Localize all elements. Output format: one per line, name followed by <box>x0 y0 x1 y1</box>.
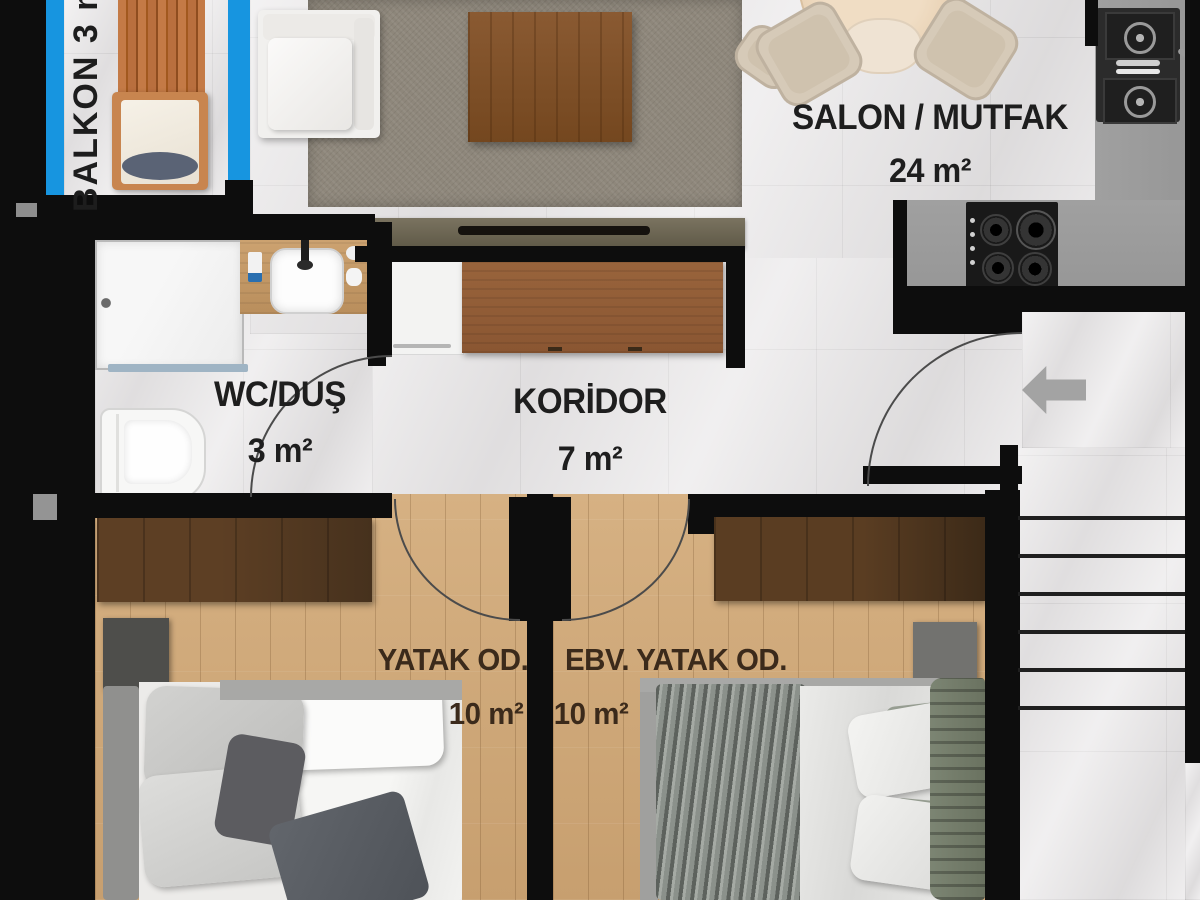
wall-end-cap <box>33 494 57 520</box>
stairwell-floor-edge <box>1185 763 1200 900</box>
wall <box>368 246 386 366</box>
soap-dispenser <box>248 252 262 282</box>
bedroom-left-top-wall <box>92 494 392 518</box>
wall <box>726 246 745 368</box>
bedroom-left-label: YATAK OD. <box>358 642 548 678</box>
wall <box>225 180 253 222</box>
tv-wall <box>355 246 745 262</box>
sink-faucet <box>1116 69 1160 74</box>
sink-basin <box>1103 78 1177 124</box>
bedroom-right-top-wall <box>688 494 1020 517</box>
stove-burner-icon <box>982 252 1014 284</box>
shower-tray <box>95 240 244 370</box>
stove-burner-icon <box>980 214 1012 246</box>
wardrobe-handle <box>628 347 642 351</box>
balcony-label: BALKON 3 m² <box>58 0 114 212</box>
sink-drain-icon <box>1124 86 1156 118</box>
wall <box>37 195 60 435</box>
balcony-chair <box>112 92 208 190</box>
salon-label: SALON / MUTFAK <box>778 98 1082 138</box>
stove-knob-icon <box>970 232 975 237</box>
bedroom-right-wardrobe <box>714 517 985 601</box>
coffee-table <box>468 12 632 142</box>
kitchen-sink-unit <box>1096 8 1180 122</box>
stove-knob-icon <box>970 246 975 251</box>
stairwell-wall <box>1000 445 1018 900</box>
salon-area: 24 m² <box>778 152 1082 191</box>
tv <box>458 226 650 235</box>
washing-machine-door-line <box>393 344 451 348</box>
shower-glass <box>108 364 248 372</box>
armchair <box>258 10 380 138</box>
bathroom-vanity <box>240 238 370 314</box>
wall <box>1185 0 1200 763</box>
corridor-label: KORİDOR <box>495 382 685 422</box>
sink-basin <box>1105 12 1175 60</box>
stove-knob-icon <box>970 218 975 223</box>
stove-knob-icon <box>970 260 975 265</box>
bed-headboard <box>930 678 985 900</box>
bedroom-left-wardrobe <box>97 518 372 602</box>
toiletry-jar <box>346 268 362 286</box>
toilet-bowl <box>124 420 192 484</box>
wall <box>893 200 907 312</box>
stove-burner-icon <box>1018 252 1052 286</box>
sink-drain-icon <box>1124 22 1156 54</box>
bedroom-right-label: EBV. YATAK OD. <box>565 642 755 678</box>
balcony-window-right <box>228 0 250 182</box>
balcony-chair-pillow <box>122 152 198 180</box>
floor-plan: BALKON 3 m² SALON / MUTFAK 24 m² WC/DUŞ … <box>0 0 1200 900</box>
armchair-arm <box>354 18 374 130</box>
wall <box>688 494 714 534</box>
bedroom-right-area: 10 m² <box>496 696 686 732</box>
bedroom-right-bed <box>640 678 985 900</box>
wall <box>1085 0 1098 46</box>
wc-label: WC/DUŞ <box>185 375 375 415</box>
corridor-area: 7 m² <box>495 440 685 479</box>
shower-drain-icon <box>99 294 113 312</box>
hall-wardrobe <box>462 260 723 353</box>
bed-headboard <box>103 686 139 900</box>
wall <box>893 286 1200 312</box>
vanity-faucet-head <box>297 260 313 270</box>
wardrobe-handle <box>548 347 562 351</box>
balcony-deck <box>118 0 205 94</box>
sink-faucet <box>1116 60 1160 66</box>
stove-burner-icon <box>1016 210 1056 250</box>
stove <box>966 202 1058 288</box>
wall <box>37 214 375 240</box>
wc-area: 3 m² <box>185 432 375 471</box>
toilet-tank-line <box>116 414 119 492</box>
washing-machine <box>382 258 464 355</box>
stairs-steps <box>1018 516 1185 714</box>
armchair-seat <box>268 38 352 130</box>
wall <box>893 312 1022 334</box>
